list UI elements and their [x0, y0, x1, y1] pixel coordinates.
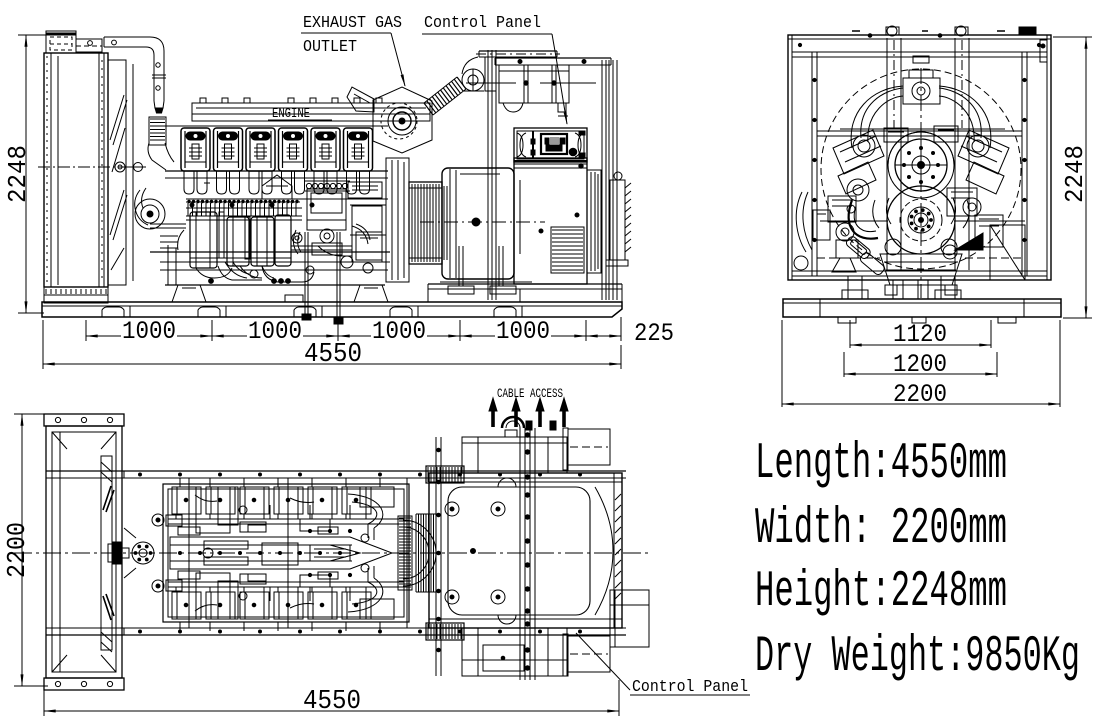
svg-text:1000: 1000	[496, 317, 550, 346]
svg-text:1000: 1000	[122, 317, 176, 346]
svg-text:EXHAUST GAS: EXHAUST GAS	[303, 13, 402, 32]
svg-text:CABLE ACCESS: CABLE ACCESS	[497, 387, 563, 401]
svg-text:225: 225	[634, 319, 674, 348]
svg-text:Length:4550mm: Length:4550mm	[755, 436, 1007, 493]
svg-text:Dry Weight:9850Kg: Dry Weight:9850Kg	[755, 629, 1080, 686]
svg-text:2248: 2248	[3, 145, 33, 203]
svg-text:Height:2248mm: Height:2248mm	[755, 564, 1007, 621]
svg-text:1120: 1120	[893, 320, 947, 349]
svg-text:Width: 2200mm: Width: 2200mm	[755, 501, 1007, 558]
svg-text:Control Panel: Control Panel	[424, 13, 541, 32]
svg-text:1200: 1200	[893, 350, 947, 379]
svg-text:2200: 2200	[893, 380, 947, 409]
svg-text:1000: 1000	[372, 317, 426, 346]
svg-text:1000: 1000	[248, 317, 302, 346]
svg-text:Control Panel: Control Panel	[632, 677, 748, 696]
svg-text:4550: 4550	[304, 340, 362, 370]
svg-text:OUTLET: OUTLET	[303, 37, 357, 56]
svg-text:2200: 2200	[2, 522, 32, 578]
svg-text:2248: 2248	[1060, 145, 1090, 203]
svg-text:4550: 4550	[303, 687, 361, 717]
